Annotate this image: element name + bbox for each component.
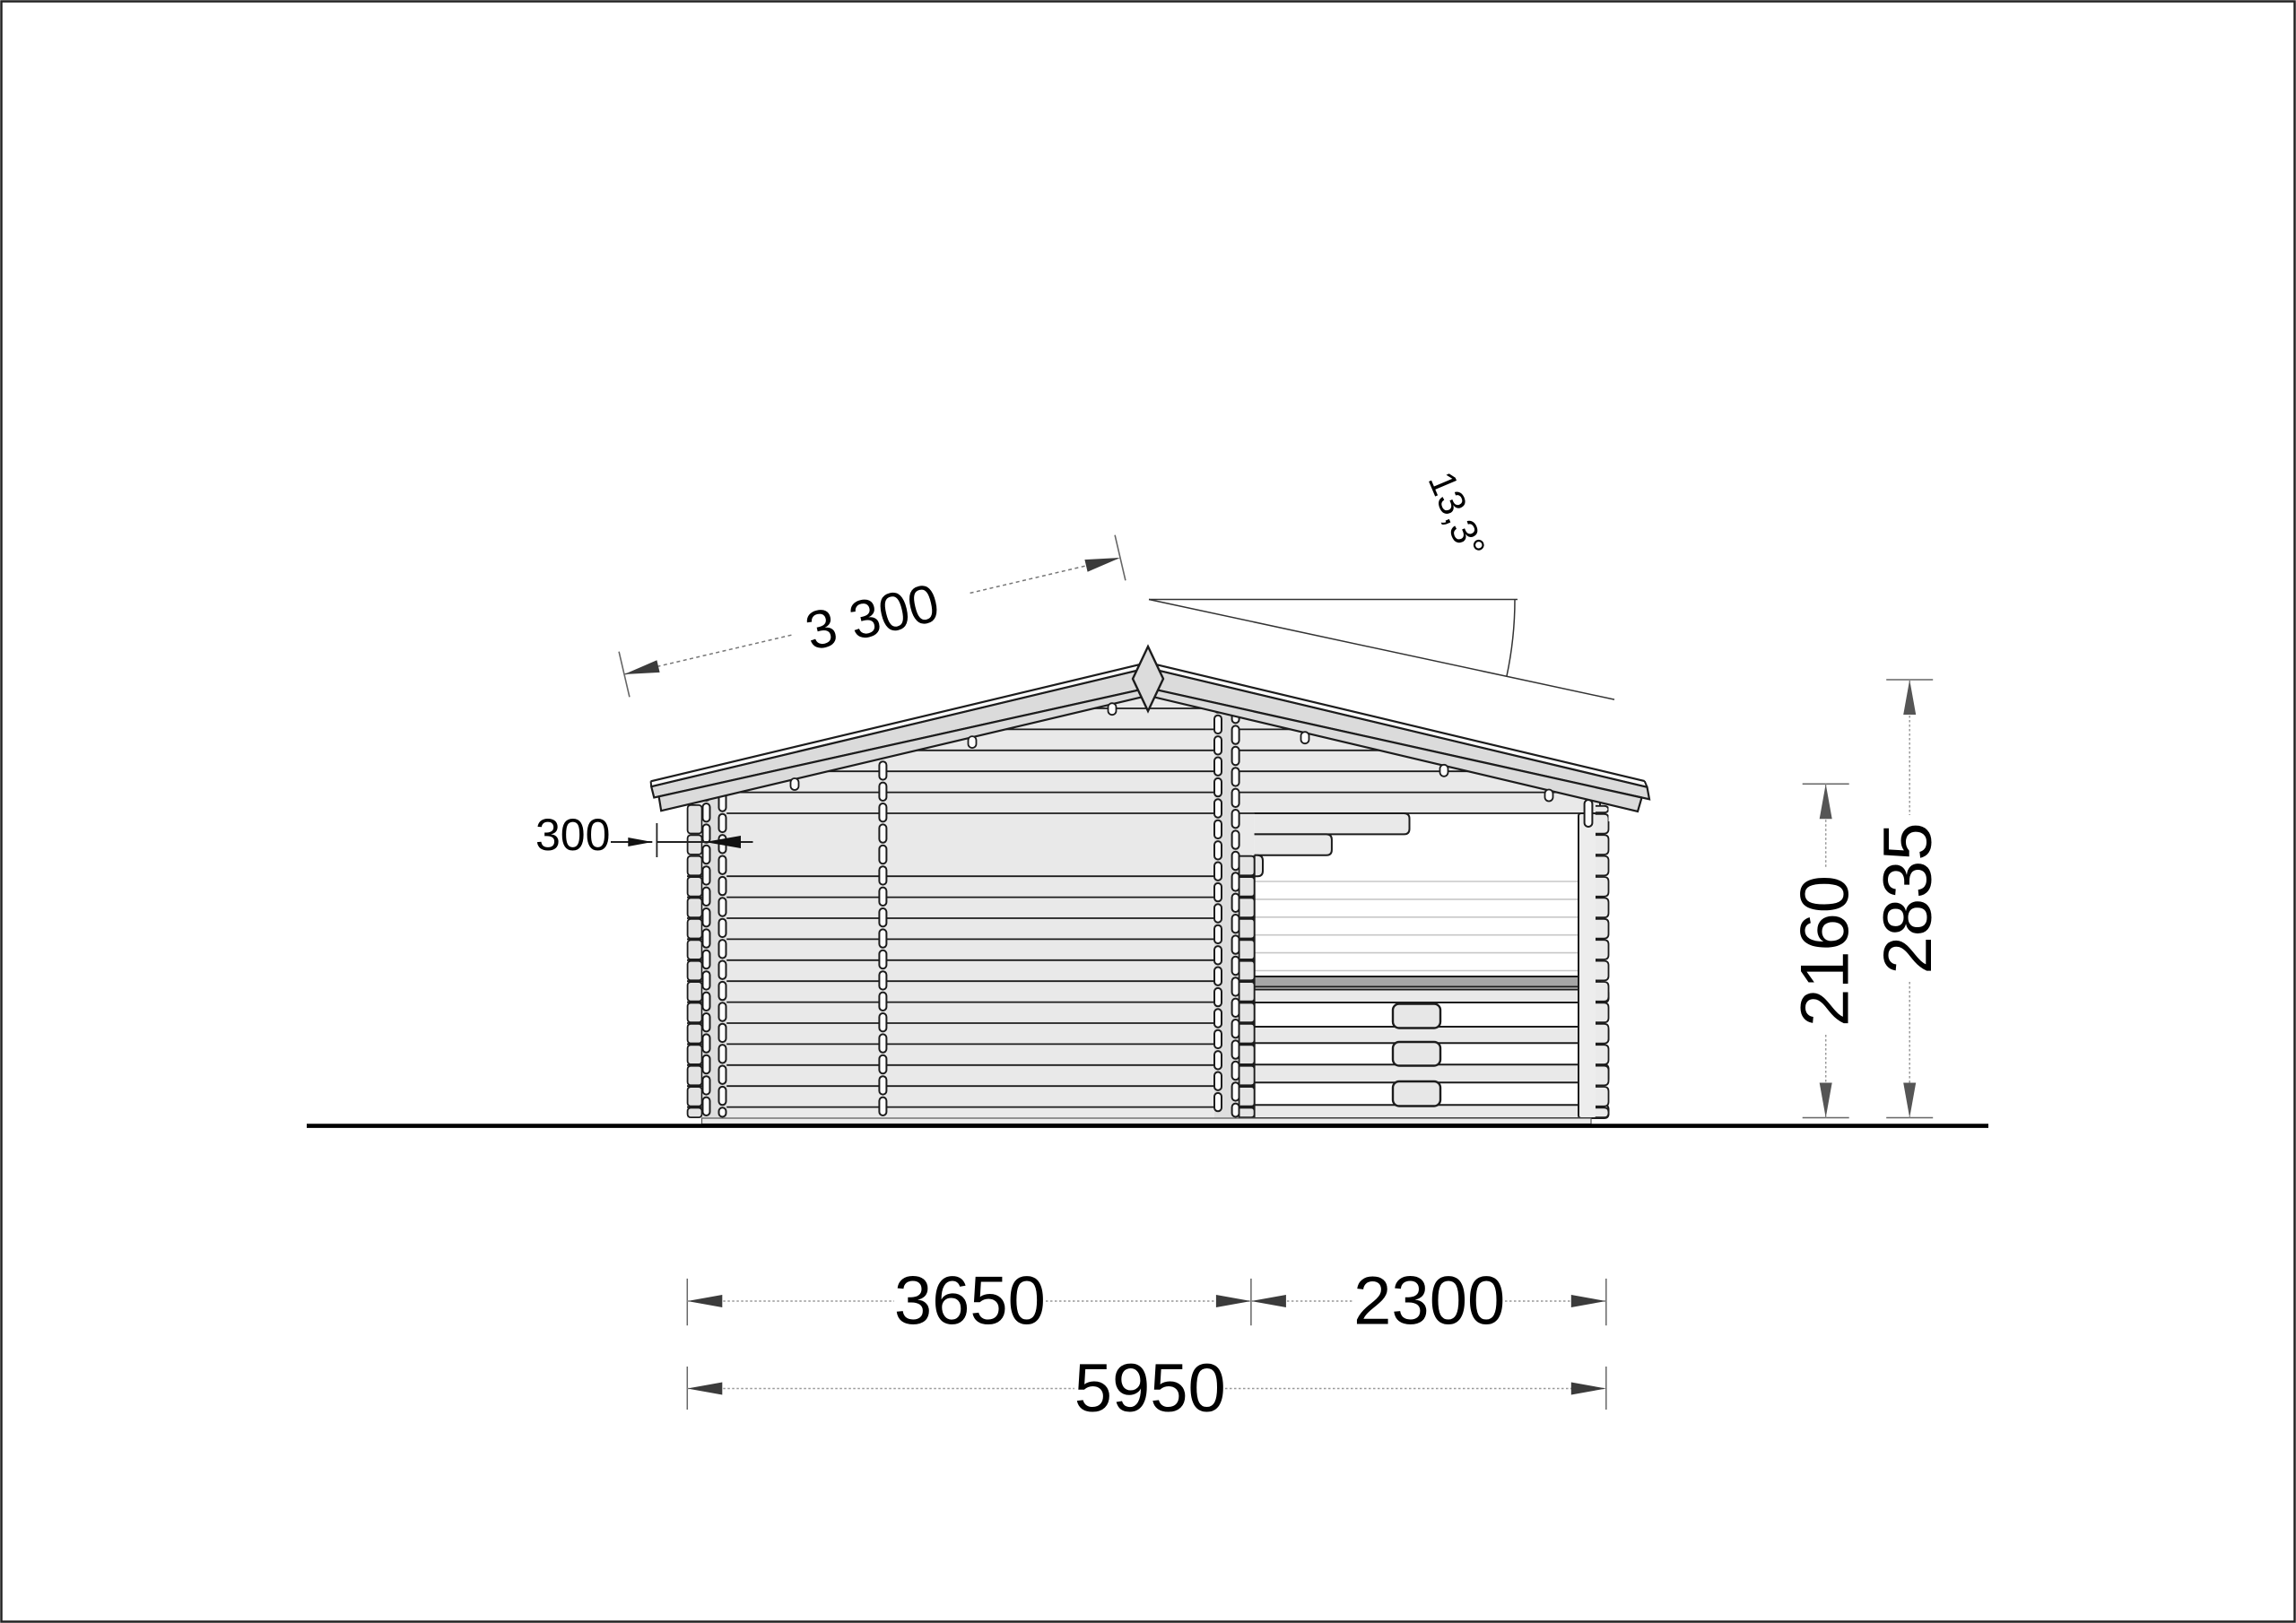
svg-text:300: 300 <box>535 810 610 860</box>
svg-text:2160: 2160 <box>1787 875 1864 1027</box>
svg-text:2300: 2300 <box>1353 1263 1505 1340</box>
svg-text:5950: 5950 <box>1074 1350 1226 1427</box>
svg-text:3650: 3650 <box>894 1263 1046 1340</box>
svg-text:2835: 2835 <box>1870 822 1946 974</box>
